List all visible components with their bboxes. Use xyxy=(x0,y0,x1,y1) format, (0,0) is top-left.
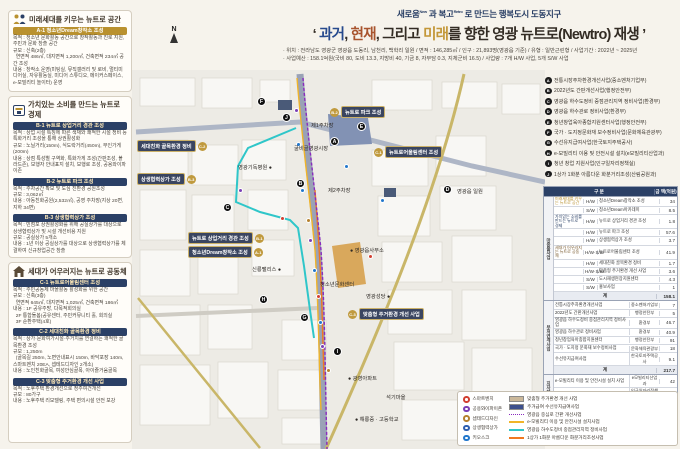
title-word-past: 과거 xyxy=(319,27,344,43)
project-block: B-3 상생협력상가 조성 목적 : 빈점포 상권활성화를 위해 공실상가를 대… xyxy=(13,214,127,255)
cell-type: H/W xyxy=(583,261,598,266)
legend-point-icon xyxy=(463,425,470,432)
place-label: 제2주차장 xyxy=(328,186,350,194)
project-bar: A-1 청소년Dream창작소 조성 xyxy=(13,27,127,35)
title-block: 새로움New 과 복고Retro 로 만드는 행복도시 도동지구 ‘ 과거, 현… xyxy=(283,8,675,63)
table-row: H/W·S/W 맞춤형 주거환경 개선 사업 3.6 xyxy=(554,268,677,276)
project-callout-label: 세대친화 골목환경 정비 xyxy=(137,140,196,152)
project-line: 3F 순환주택(4호) xyxy=(13,320,127,326)
cell-department: e모빌리티산업과 xyxy=(629,375,659,387)
project-callout: C-1 뉴트로어울림센터 조성 xyxy=(374,146,442,158)
linked-project-marker: J xyxy=(282,113,291,122)
linked-project-label: 2022년도 간판개선사업(행정안전부) xyxy=(554,87,631,94)
legend-label: 맞춤형 주거환경 개선 사업 xyxy=(527,396,577,402)
page-title: ‘ 과거, 현재, 그리고 미래를 향한 영광 뉴트로(Newtro) 재생 ’ xyxy=(283,23,675,44)
seed-rows: 미래세대를 키우는 뉴트로 공간 H/W 청소년Dream창작소 조성 34 S… xyxy=(554,197,677,292)
legend-point-icon xyxy=(463,435,470,442)
table-row: 미래세대를 키우는 뉴트로 공간 H/W 청소년Dream창작소 조성 34 xyxy=(554,197,677,207)
legend-item: e-모빌리티 이용 및 안전시설 설치사업 xyxy=(509,419,607,425)
house-icon xyxy=(13,266,25,277)
project-line: 목적 : 상가·문화여가시설·주거지를 연결하는 쾌적한 골목환경 조성 xyxy=(13,337,127,350)
cell-project: 상생협력상가 조성 xyxy=(598,238,659,243)
header-amount: 금 액(억원) xyxy=(654,189,677,195)
place-label: 영광성당 ● xyxy=(366,292,390,300)
cell-project: 청년창업육아종합지원센터 xyxy=(554,338,629,343)
project-line: 규모 : 노닐거리(150m), 식도락거리(450m), 무인가게(200m) xyxy=(13,144,127,157)
cell-type: S/W xyxy=(583,285,598,290)
facility-dot-icon xyxy=(308,238,313,243)
project-callout-label: 뉴트로 파크 조성 xyxy=(341,106,385,118)
subtitle-part: 로 만드는 행복도시 도동지구 xyxy=(463,9,562,19)
project-line: (골목길 250m, 노면안내표시 150m, 바닥포장 140m, 스마트벤치… xyxy=(13,356,127,369)
table-row: 영광읍 하수도정비 중점관리지역 정비사업 환경부 46.7 xyxy=(554,318,677,329)
cell-type: H/W xyxy=(583,238,598,243)
project-block: B-1 뉴트로 상업거리 경관 조성 목적 : 상업 시설 특징에 따른 색채와… xyxy=(13,122,127,176)
legend-point-icon xyxy=(463,396,470,403)
project-line: 목적 : 상업 시설 특징에 따른 색채와 쾌적한 시설 정비 등 특화거리 조… xyxy=(13,131,127,144)
place-label: 제1주차장 xyxy=(311,121,333,129)
linked-project-item: E 청년창업육아종합지원센터사업(행정안전부) xyxy=(545,119,678,126)
cell-type: H/W·S/W xyxy=(583,250,598,255)
project-line: 내용 : 1년 이상 공실상가를 대상으로 상생협력상가를 체결하여 신규창업공… xyxy=(13,242,127,255)
facility-dot-icon xyxy=(300,188,305,193)
cell-project: 국가 · 도지정 문화재 보수정비사업 xyxy=(554,346,629,351)
project-block: B-2 뉴트로 파크 조성 목적 : 주차공간 확보 및 도심 친환경 공원조성… xyxy=(13,178,127,213)
section-c-header: 세대가 어우러지는 뉴트로 공동체 xyxy=(13,266,127,277)
linked-project-marker: B xyxy=(296,179,305,188)
legend-swatch xyxy=(509,421,524,423)
cell-amount: 18 xyxy=(659,346,677,351)
project-line: 내용 : 아동친화공원(2,532㎡), 공영 주차장(지상 20면, 지하 3… xyxy=(13,199,127,212)
legend-label: 스마트벤치 xyxy=(473,396,494,402)
project-block: C-1 뉴트로어울림센터 조성 목적 : 주민공동체 마을활동 활성화를 위한 … xyxy=(13,279,127,326)
linked-project-item: H e-모빌리티 이용 및 안전시설 설치(e모빌리티산업과) xyxy=(545,150,678,157)
facility-dot-icon xyxy=(280,216,285,221)
project-callout-label: 뉴트로 상업거리 경관 조성 xyxy=(188,232,253,244)
project-bar: C-2 세대친화 골목환경 정비 xyxy=(13,328,127,336)
place-label: 석기마을 xyxy=(386,393,406,401)
legend-label: 1상가 1화분 아름다운 화분거리조성사업 xyxy=(527,435,604,441)
table-row: 전통시장주차환경개선사업 중소벤처기업부 7 xyxy=(554,301,677,309)
cell-department: 중소벤처기업부 xyxy=(629,302,659,308)
table-row: 가치있는 소비를 만드는 뉴트로 경제 H/W 뉴트로 상업거리 경관 조성 1… xyxy=(554,215,677,229)
linked-project-marker: H xyxy=(259,295,268,304)
place-label: 청소년문화센터 xyxy=(320,280,354,288)
cell-department: 환경부 xyxy=(629,329,659,335)
place-label: 굴비골영광시장 xyxy=(294,144,328,152)
table-row: S/W 도시재생현장지원센터 4.3 xyxy=(554,276,677,284)
linked-project-label: 전통시장주차환경개선사업(중소벤처기업부) xyxy=(554,77,646,84)
letter-badge: I xyxy=(545,160,552,167)
project-callout: B-3 상생협력상가 조성 xyxy=(137,173,196,185)
title-sep: , 그리고 xyxy=(376,27,423,43)
cell-project: 영광읍 하수관로 정비사업 xyxy=(554,330,629,335)
cell-project: 세대친화 골목환경 정비 xyxy=(598,261,659,266)
cell-category: 가치있는 소비를 만드는 뉴트로 경제 xyxy=(554,215,583,228)
group-seed-projects: 마중물사업 미래세대를 키우는 뉴트로 공간 H/W 청소년Dream창작소 조… xyxy=(544,196,677,300)
linked-project-item: B 2022년도 간판개선사업(행정안전부) xyxy=(545,87,678,94)
linked-project-label: 수선유지급여사업(한국토지주택공사) xyxy=(554,139,632,146)
cell-project: 뉴트로 파크 조성 xyxy=(598,230,659,235)
section-c-title: 세대가 어우러지는 뉴트로 공동체 xyxy=(28,267,127,277)
facility-dot-icon xyxy=(238,188,243,193)
project-callout-label: 상생협력상가 조성 xyxy=(137,173,185,185)
cell-project: 뉴트로어울림센터 조성 xyxy=(598,250,659,255)
subtotal-label: 계 xyxy=(554,367,656,373)
legend-label: 셉테드디자인 xyxy=(473,416,498,422)
cell-amount: 3.7 xyxy=(659,238,677,243)
title-quote: ’ xyxy=(639,27,645,43)
legend-line-column: 맞춤형 주거환경 개선 사업 주거급여 수선유지급여사업 영광읍 중심로 간판 … xyxy=(509,396,607,441)
facility-dot-icon xyxy=(320,344,325,349)
legend-point-icon xyxy=(463,406,470,413)
subtotal-row: 계 217.7 xyxy=(554,366,677,374)
table-row: 청년창업육아종합지원센터 행정안전부 91 xyxy=(554,337,677,345)
legend-item: 영광읍 중심로 간판 개선사업 xyxy=(509,412,607,418)
table-row: 영광읍 하수관로 정비사업 환경부 40.9 xyxy=(554,329,677,337)
cell-amount: 34 xyxy=(659,199,677,204)
project-bar: B-3 상생협력상가 조성 xyxy=(13,214,127,222)
table-row: S/W 홍보사업 1 xyxy=(554,284,677,292)
project-callout: C-3 맞춤형 주거환경 개선 사업 xyxy=(348,308,424,320)
ministry-rows: 전통시장주차환경개선사업 중소벤처기업부 7 2022년도 간판개선사업 행정안… xyxy=(554,301,677,366)
project-badge: C-3 xyxy=(348,310,357,319)
cell-amount: 1.8 xyxy=(659,219,677,224)
legend-item: 셉테드디자인 xyxy=(463,415,502,422)
project-bar: B-2 뉴트로 파크 조성 xyxy=(13,178,127,186)
cell-department: 행정안전부 xyxy=(629,337,659,343)
cell-type: H/W xyxy=(583,199,598,204)
subtitle-sup-new: New xyxy=(420,9,427,14)
info-line-budget: · 사업예산 : 158.1억원(국비 80, 도비 13.3, 지방비 40,… xyxy=(283,55,675,63)
linked-project-marker: E xyxy=(357,122,366,131)
cell-amount: 9.1 xyxy=(659,357,677,362)
cell-department: 한국토지주택공사 xyxy=(629,353,659,365)
project-line: 연면적 486㎡, 대지면적 1,200㎡, 건축면적 234㎡ 공간 조성 xyxy=(13,55,127,68)
project-lines: 목적 : 청소년 문화활동 공간으로 창작활동과 진로 지원, 주민과 문화 창… xyxy=(13,36,127,87)
letter-badge: G xyxy=(545,140,552,147)
people-icon xyxy=(13,14,26,25)
group-name-vertical: 마중물사업 xyxy=(544,197,554,300)
linked-project-item: A 전통시장주차환경개선사업(중소벤처기업부) xyxy=(545,77,678,84)
compass-n-label: N xyxy=(170,26,178,33)
cell-amount: 4.3 xyxy=(659,277,677,282)
linked-project-label: 국가 · 도지정문화재 보수정비사업(문화체육관광부) xyxy=(554,129,662,136)
place-label: ● 영광읍사무소 xyxy=(350,246,384,254)
letter-badge: F xyxy=(545,129,552,136)
subtitle-part: 과 복고 xyxy=(427,9,454,19)
title-rest: 를 향한 영광 뉴트로(Newtro) 재생 xyxy=(448,27,639,43)
linked-project-item: C 영광읍 하수도정비 중점관리지역 정비사업(환경부) xyxy=(545,98,678,105)
project-callout: A-1 청소년Dream창작소 조성 xyxy=(188,246,263,258)
budget-table-header: 구 분 금 액(억원) xyxy=(544,187,677,196)
linked-project-marker: F xyxy=(257,97,266,106)
subtotal-row: 계 158.1 xyxy=(554,292,677,300)
facility-dot-icon xyxy=(380,198,385,203)
subtotal-amount: 217.7 xyxy=(656,368,677,373)
linked-project-marker: I xyxy=(333,347,342,356)
table-row: H/W 세대친화 골목환경 정비 1.7 xyxy=(554,260,677,268)
project-block: C-3 맞춤형 주거환경 개선 사업 목적 : 노후주택 환경개선으로 정주여건… xyxy=(13,378,127,406)
table-row: 세대가 어우러지는 뉴트로 공동체 H/W·S/W 뉴트로어울림센터 조성 41… xyxy=(554,246,677,260)
legend-item: 맞춤형 주거환경 개선 사업 xyxy=(509,396,607,402)
cell-category: 세대가 어우러지는 뉴트로 공동체 xyxy=(554,246,583,259)
subtotal-label: 계 xyxy=(554,293,656,299)
letter-badge: J xyxy=(545,171,552,178)
newtro-plan-poster: { "header": { "sub_s1": "새로움", "sub_sup1… xyxy=(0,0,680,449)
legend-swatch xyxy=(509,404,524,410)
legend-label: 영광읍 하수도정비 중점관리지역 정비사업 xyxy=(527,427,607,433)
cell-department: 환경부 xyxy=(629,320,659,326)
linked-project-item: I 청년 창업 지원사업(인구일자리정책실) xyxy=(545,160,678,167)
subtitle-part: 새로움 xyxy=(397,9,420,19)
store-icon xyxy=(13,105,25,116)
legend-swatch xyxy=(509,414,524,415)
subtitle: 새로움New 과 복고Retro 로 만드는 행복도시 도동지구 xyxy=(283,8,675,20)
legend-item: 주거급여 수선유지급여사업 xyxy=(509,404,607,410)
cell-amount: 46.7 xyxy=(659,320,677,325)
letter-badge: D xyxy=(545,108,552,115)
cell-amount: 7 xyxy=(659,303,677,308)
section-future-space: 미래세대를 키우는 뉴트로 공간 A-1 청소년Dream창작소 조성 목적 :… xyxy=(8,10,132,92)
cell-project: 수선유지급여사업 xyxy=(554,357,629,362)
linked-project-list: A 전통시장주차환경개선사업(중소벤처기업부) B 2022년도 간판개선사업(… xyxy=(545,77,678,181)
project-lines: 목적 : 상업 시설 특징에 따른 색채와 쾌적한 시설 정비 등 특화거리 조… xyxy=(13,131,127,176)
table-row: e-모빌리티 이용 및 안전시설 설치 사업 e모빌리티산업과 42 xyxy=(554,375,677,388)
cell-amount: 40.9 xyxy=(659,330,677,335)
cell-project: 맞춤형 주거환경 개선 사업 xyxy=(598,269,659,274)
legend-item: 스마트벤치 xyxy=(463,396,502,403)
legend-label: e-모빌리티 이용 및 안전시설 설치사업 xyxy=(527,419,600,425)
project-lines: 목적 : 빈점포 상권활성화를 위해 공실상가를 대상으로 상생협력상가 및 시… xyxy=(13,223,127,255)
cell-project: e-모빌리티 이용 및 안전시설 설치 사업 xyxy=(554,379,629,384)
compass-arrow-icon xyxy=(170,33,178,43)
place-label: ● 해룡중 · 고등학교 xyxy=(355,415,399,423)
cell-type: H/W xyxy=(583,219,598,224)
project-line: 목적 : 청소년 문화활동 공간으로 창작활동과 진로 지원, 주민과 문화 창… xyxy=(13,36,127,49)
title-word-future: 미래 xyxy=(423,27,448,43)
group-ministry-projects: 부처연계사업 전통시장주차환경개선사업 중소벤처기업부 7 2022년도 간판개… xyxy=(544,300,677,374)
project-badge: B-3 xyxy=(187,175,196,184)
section-community: 세대가 어우러지는 뉴트로 공동체 C-1 뉴트로어울림센터 조성 목적 : 주… xyxy=(8,262,132,443)
cell-amount: 8.5 xyxy=(659,208,677,213)
cell-amount: 1 xyxy=(659,285,677,290)
facility-dot-icon xyxy=(344,164,349,169)
cell-department: 문화체육관광부 xyxy=(629,346,659,352)
cell-project: 2022년도 간판개선사업 xyxy=(554,311,629,316)
cell-project: 영광읍 하수도정비 중점관리지역 정비사업 xyxy=(554,318,629,328)
project-lines: 목적 : 노후주택 환경개선으로 정주여건개선규모 : 80가구내용 : 노후주… xyxy=(13,387,127,406)
facility-dot-icon xyxy=(312,268,317,273)
project-lines: 목적 : 주차공간 확보 및 도심 친환경 공원조성규모 : 3,062㎡내용 … xyxy=(13,187,127,213)
project-line: 내용 : 노후주택 리모델링, 주택 편의시설 안전 보강 xyxy=(13,399,127,405)
cell-amount: 5 xyxy=(659,311,677,316)
place-label: 영광기독병원 ● xyxy=(238,163,272,171)
cell-project: 청소년Dream아카데미 xyxy=(598,208,659,213)
linked-project-item: D 영광읍 하수관로 정비사업(환경부) xyxy=(545,108,678,115)
linked-project-marker: G xyxy=(300,313,309,322)
legend-label: 주거급여 수선유지급여사업 xyxy=(527,404,579,410)
project-callout-label: 뉴트로어울림센터 조성 xyxy=(385,146,442,158)
section-a-header: 미래세대를 키우는 뉴트로 공간 xyxy=(13,14,127,25)
compass: N xyxy=(170,26,178,43)
legend-point-column: 스마트벤치 공용와이파이존 셉테드디자인 상생협력상가 키오스크 xyxy=(463,396,502,441)
linked-project-label: 청년창업육아종합지원센터사업(행정안전부) xyxy=(554,119,646,126)
cell-amount: 1.7 xyxy=(659,261,677,266)
cell-department: 행정안전부 xyxy=(629,310,659,316)
cell-project: 전통시장주차환경개선사업 xyxy=(554,303,629,308)
table-row: 수선유지급여사업 한국토지주택공사 9.1 xyxy=(554,353,677,366)
facility-dot-icon xyxy=(316,294,321,299)
place-label: 신룡팰리스 ● xyxy=(252,265,281,273)
cell-amount: 3.6 xyxy=(659,269,677,274)
section-a-projects: A-1 청소년Dream창작소 조성 목적 : 청소년 문화활동 공간으로 창작… xyxy=(13,27,127,87)
cell-amount: 91 xyxy=(659,338,677,343)
cell-project: 뉴트로 상업거리 경관 조성 xyxy=(598,219,659,224)
project-block: A-1 청소년Dream창작소 조성 목적 : 청소년 문화활동 공간으로 창작… xyxy=(13,27,127,87)
section-c-projects: C-1 뉴트로어울림센터 조성 목적 : 주민공동체 마을활동 활성화를 위한 … xyxy=(13,279,127,406)
section-a-title: 미래세대를 키우는 뉴트로 공간 xyxy=(29,15,121,25)
title-word-present: 현재 xyxy=(351,27,376,43)
facility-dot-icon xyxy=(294,108,299,113)
cell-type: S/W xyxy=(583,208,598,213)
cell-type: H/W xyxy=(583,230,598,235)
linked-project-marker: C xyxy=(223,203,232,212)
legend-swatch xyxy=(509,396,524,402)
project-line: 내용 : 노인친화골목, 여성안심골목, 아이즐거움골목 xyxy=(13,369,127,375)
project-block: C-2 세대친화 골목환경 정비 목적 : 상가·문화여가시설·주거지를 연결하… xyxy=(13,328,127,375)
public-building xyxy=(278,100,292,110)
cell-category: 미래세대를 키우는 뉴트로 공간 xyxy=(554,197,583,206)
cell-project: 도시재생현장지원센터 xyxy=(598,277,659,282)
letter-badge: E xyxy=(545,119,552,126)
letter-badge: B xyxy=(545,88,552,95)
project-line: 목적 : 빈점포 상권활성화를 위해 공실상가를 대상으로 상생협력상가 및 시… xyxy=(13,223,127,236)
legend-item: 상생협력상가 xyxy=(463,425,502,432)
linked-project-label: e-모빌리티 이용 및 안전시설 설치(e모빌리티산업과) xyxy=(554,150,664,157)
legend-item: 키오스크 xyxy=(463,435,502,442)
linked-project-label: 영광읍 하수관로 정비사업(환경부) xyxy=(554,108,626,115)
cell-amount: 42 xyxy=(659,379,677,384)
legend-item: 1상가 1화분 아름다운 화분거리조성사업 xyxy=(509,435,607,441)
project-line: 2F 통합돌봄(공유센터, 주민커뮤니티 홀, 회의실 xyxy=(13,314,127,320)
linked-project-label: 1상가 1화분 아름다운 화분거리조성(산림공원과) xyxy=(554,171,656,178)
facility-dot-icon xyxy=(326,368,331,373)
legend-label: 키오스크 xyxy=(473,435,490,441)
project-lines: 목적 : 상가·문화여가시설·주거지를 연결하는 쾌적한 골목환경 조성규모 :… xyxy=(13,337,127,375)
project-badge: C-2 xyxy=(198,142,207,151)
map-legend: 스마트벤치 공용와이파이존 셉테드디자인 상생협력상가 키오스크 맞춤형 주거환… xyxy=(457,391,678,446)
cell-type: S/W xyxy=(583,277,598,282)
project-callout: C-2 세대친화 골목환경 정비 xyxy=(137,140,207,152)
linked-project-item: F 국가 · 도지정문화재 보수정비사업(문화체육관광부) xyxy=(545,129,678,136)
subtitle-sup-retro: Retro xyxy=(454,9,463,14)
project-line: 내용 : 창작소 운영(미팅실, 뮤직갤러리 및 로비, 멀티미디어실, 자유활… xyxy=(13,68,127,87)
cell-amount: 41.9 xyxy=(659,250,677,255)
section-b-title: 가치있는 소비를 만드는 뉴트로 경제 xyxy=(28,100,127,120)
section-economy: 가치있는 소비를 만드는 뉴트로 경제 B-1 뉴트로 상업거리 경관 조성 목… xyxy=(8,96,132,258)
legend-swatch xyxy=(509,429,524,431)
project-bar: C-3 맞춤형 주거환경 개선 사업 xyxy=(13,378,127,386)
project-badge: B-2 xyxy=(330,108,339,117)
project-callout: B-1 뉴트로 상업거리 경관 조성 xyxy=(188,232,264,244)
section-b-header: 가치있는 소비를 만드는 뉴트로 경제 xyxy=(13,100,127,120)
project-lines: 목적 : 주민공동체 마을활동 활성화를 위한 공간규모 : 신축(3층) 연면… xyxy=(13,288,127,326)
linked-project-item: J 1상가 1화분 아름다운 화분거리조성(산림공원과) xyxy=(545,171,678,178)
legend-item: 공용와이파이존 xyxy=(463,406,502,413)
cell-type: H/W·S/W xyxy=(583,269,598,274)
table-row: 국가 · 도지정 문화재 보수정비사업 문화체육관광부 18 xyxy=(554,345,677,353)
cell-project: 홍보사업 xyxy=(598,285,659,290)
project-callout-label: 맞춤형 주거환경 개선 사업 xyxy=(359,308,424,320)
facility-dot-icon xyxy=(368,254,373,259)
place-label: ● 광영아파트 xyxy=(348,374,377,382)
legend-item: 영광읍 하수도정비 중점관리지역 정비사업 xyxy=(509,427,607,433)
legend-swatch xyxy=(509,437,524,439)
project-bar: C-1 뉴트로어울림센터 조성 xyxy=(13,279,127,287)
cell-project: 청소년Dream창작소 조성 xyxy=(598,199,659,204)
legend-point-icon xyxy=(463,415,470,422)
facility-dot-icon xyxy=(306,218,311,223)
linked-project-label: 청년 창업 지원사업(인구일자리정책실) xyxy=(554,160,635,167)
legend-label: 영광읍 중심로 간판 개선사업 xyxy=(527,412,582,418)
letter-badge: H xyxy=(545,150,552,157)
public-building xyxy=(384,188,396,197)
group-name-vertical: 부처연계사업 xyxy=(544,301,554,374)
project-line: 내용 : 상점 특성별 구역화, 특화가게 조성(간판조성, 볼라드존), 보행… xyxy=(13,157,127,176)
linked-project-label: 영광읍 하수도정비 중점관리지역 정비사업(환경부) xyxy=(554,98,660,105)
project-badge: B-1 xyxy=(255,234,264,243)
project-callout: B-2 뉴트로 파크 조성 xyxy=(330,106,385,118)
info-line-location: · 위치 : 전라남도 영광군 영광읍 도동리, 남천리, 백학리 일원 / 면… xyxy=(283,47,675,55)
project-bar: B-1 뉴트로 상업거리 경관 조성 xyxy=(13,122,127,130)
project-badge: C-1 xyxy=(374,148,383,157)
letter-badge: C xyxy=(545,98,552,105)
letter-badge: A xyxy=(545,77,552,84)
facility-dot-icon xyxy=(318,320,323,325)
header-category: 구 분 xyxy=(544,189,654,195)
legend-label: 상생협력상가 xyxy=(473,425,498,431)
subtotal-amount: 158.1 xyxy=(656,294,677,299)
section-b-projects: B-1 뉴트로 상업거리 경관 조성 목적 : 상업 시설 특징에 따른 색채와… xyxy=(13,122,127,255)
legend-label: 공용와이파이존 xyxy=(473,406,503,412)
cell-amount: 57.6 xyxy=(659,230,677,235)
linked-project-marker: A xyxy=(330,137,339,146)
project-callout-label: 청소년Dream창작소 조성 xyxy=(188,246,252,258)
linked-project-marker: D xyxy=(443,185,452,194)
project-badge: A-1 xyxy=(254,248,263,257)
linked-project-item: G 수선유지급여사업(한국토지주택공사) xyxy=(545,139,678,146)
place-label: 영광읍 일원 xyxy=(457,187,483,195)
